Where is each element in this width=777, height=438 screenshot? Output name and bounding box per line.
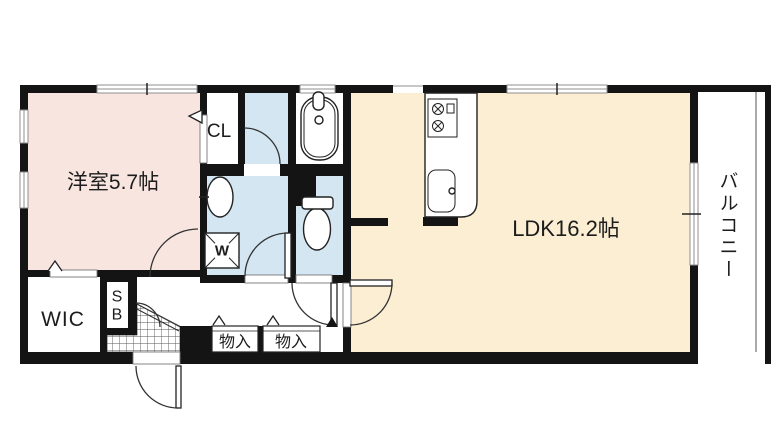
shoe-box-label: SB bbox=[110, 288, 125, 323]
washroom-door-opening bbox=[245, 275, 288, 283]
toilet-door bbox=[292, 283, 338, 327]
storage1-label: 物入 bbox=[219, 328, 251, 352]
left-window-lower bbox=[20, 172, 28, 208]
bath-door-opening bbox=[244, 164, 280, 176]
left-window-upper bbox=[20, 110, 28, 143]
wic-label: WIC bbox=[41, 308, 85, 332]
toilet-door-opening bbox=[296, 275, 332, 283]
washer-label: W bbox=[215, 243, 229, 260]
storage1-door-mark bbox=[213, 316, 225, 325]
bathtub-icon bbox=[301, 92, 338, 160]
floorplan-drawing bbox=[0, 0, 777, 438]
kitchen-window bbox=[393, 85, 423, 93]
kitchen-counter bbox=[425, 93, 477, 217]
ldk-top-window bbox=[507, 83, 607, 95]
wic-door-panel bbox=[50, 270, 97, 277]
ldk-label: LDK16.2帖 bbox=[512, 211, 620, 243]
western-room-label: 洋室5.7帖 bbox=[67, 166, 159, 196]
window-slider bbox=[97, 83, 197, 95]
ldk-door-opening bbox=[343, 283, 351, 327]
toilet-icon bbox=[302, 197, 333, 250]
storage2-door-mark bbox=[267, 316, 279, 325]
storage2-label: 物入 bbox=[275, 328, 307, 352]
entrance-door-opening bbox=[133, 352, 180, 364]
entrance-door bbox=[136, 366, 181, 408]
closet-label: CL bbox=[207, 121, 231, 143]
floorplan: 洋室5.7帖 LDK16.2帖 バルコニー WIC CL SB 物入 物入 W bbox=[0, 0, 777, 438]
balcony-label: バルコニー bbox=[714, 171, 741, 281]
